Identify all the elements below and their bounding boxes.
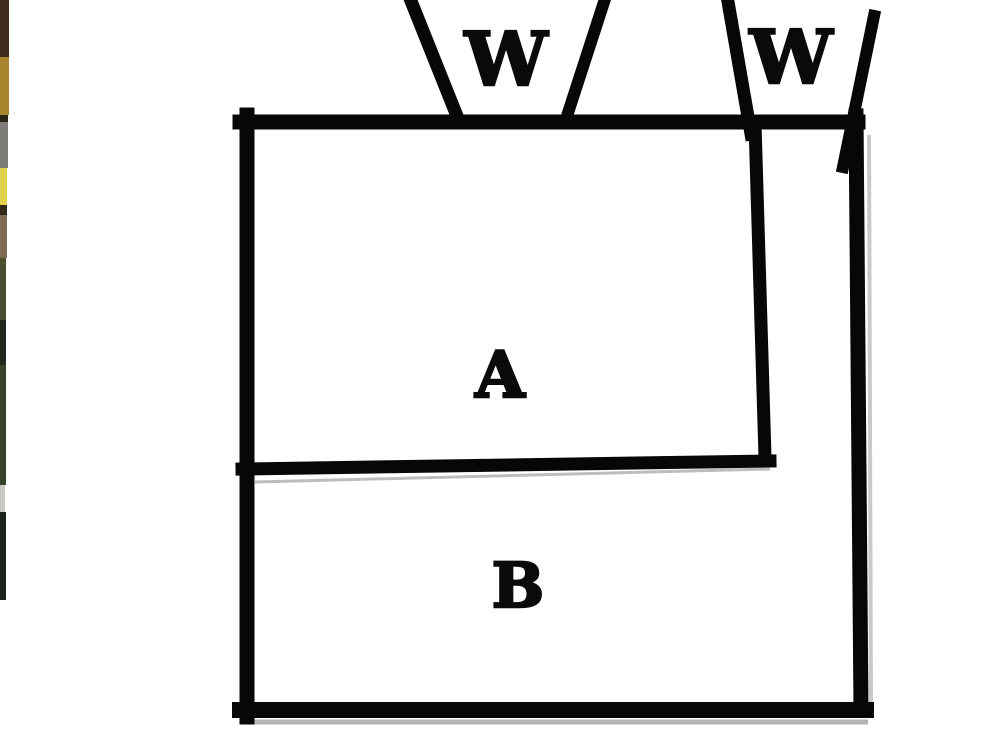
- diagram-canvas: W W A B: [0, 0, 1000, 750]
- box-right-edge: [856, 116, 861, 710]
- photo-strip-segment: [0, 57, 9, 115]
- photo-strip: [0, 0, 9, 600]
- right-funnel-left-line: [727, 0, 751, 134]
- photo-strip-segment: [0, 205, 7, 215]
- box-right-shadow: [869, 135, 871, 712]
- photo-strip-segment: [0, 258, 6, 320]
- left-funnel-left-line: [409, 0, 457, 116]
- photo-strip-segment: [0, 485, 5, 512]
- photo-strip-segment: [0, 0, 9, 57]
- photo-strip-segment: [0, 512, 6, 600]
- left-funnel-right-line: [567, 2, 604, 116]
- photo-strip-segment: [0, 215, 7, 258]
- photo-strip-segment: [0, 365, 6, 485]
- funnel-box-diagram: W W A B: [0, 0, 1000, 750]
- left-funnel-label: W: [463, 17, 548, 103]
- region-a-label: A: [474, 338, 526, 413]
- region-b-label: B: [492, 549, 544, 622]
- region-a-right-edge: [755, 124, 765, 457]
- photo-strip-segment: [0, 320, 6, 365]
- region-divider-line: [242, 461, 770, 469]
- photo-strip-segment: [0, 122, 8, 168]
- right-funnel-label: W: [748, 15, 833, 101]
- photo-strip-segment: [0, 168, 7, 205]
- photo-strip-segment: [0, 115, 8, 122]
